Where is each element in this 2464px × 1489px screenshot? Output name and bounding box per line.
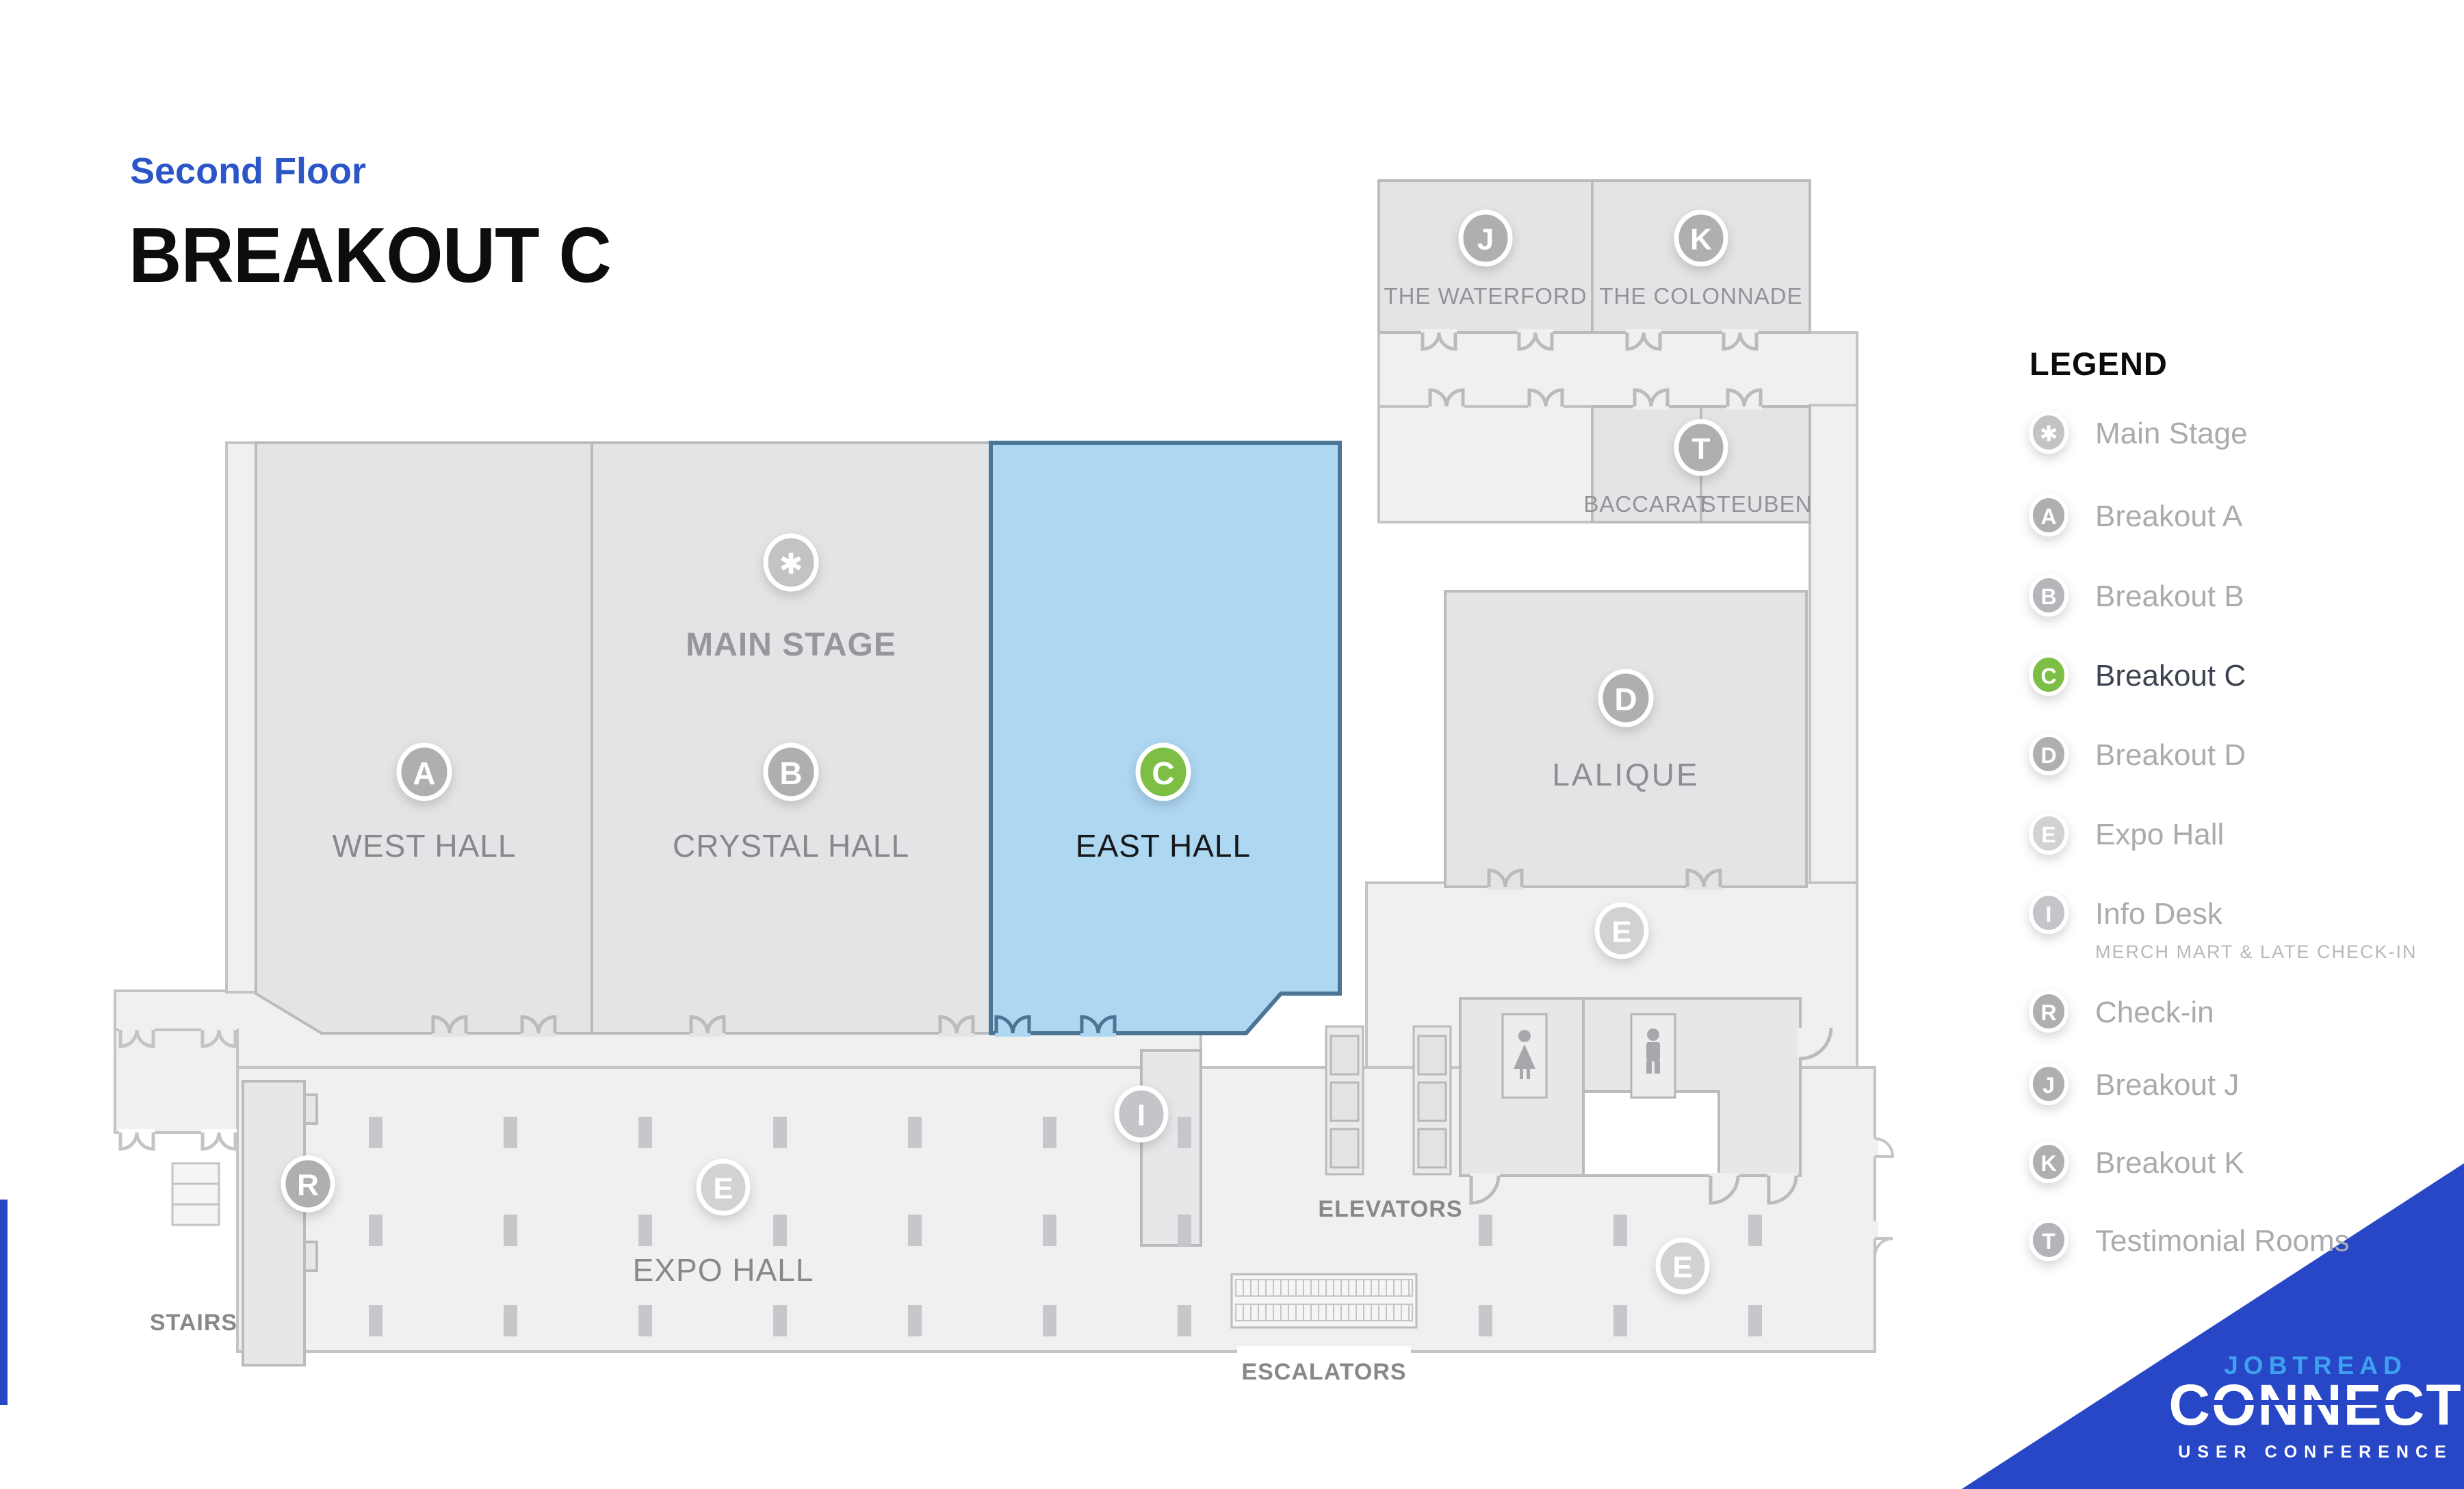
svg-text:Testimonial Rooms: Testimonial Rooms (2095, 1224, 2350, 1258)
restrooms-block (1460, 998, 1800, 1176)
stairs-label: STAIRS (150, 1310, 237, 1336)
logo-tagline: USER CONFERENCE (2178, 1442, 2452, 1462)
badge-check-in-r: R (283, 1158, 333, 1210)
svg-text:E: E (1672, 1251, 1692, 1284)
west-hall-label: WEST HALL (333, 828, 517, 864)
escalators-label: ESCALATORS (1241, 1359, 1406, 1385)
banner-left-sliver (0, 1200, 8, 1405)
legend-item-expo-hall: E (2031, 814, 2066, 853)
corridor-west-strip (226, 443, 256, 992)
colonnade-label: THE COLONNADE (1599, 283, 1802, 309)
badge-east-hall-c: C (1138, 745, 1189, 799)
badge-expo-e-1: E (699, 1161, 748, 1213)
room-lalique (1445, 591, 1806, 887)
badge-crystal-hall-b: B (766, 745, 816, 799)
page-title: BREAKOUT C (129, 212, 611, 299)
svg-text:✱: ✱ (779, 548, 803, 580)
legend-item-breakout-d: D (2031, 735, 2066, 773)
lalique-label: LALIQUE (1552, 757, 1699, 792)
svg-text:B: B (779, 755, 802, 791)
room-crystal-hall (592, 443, 991, 1033)
legend-item-breakout-b: B (2031, 576, 2066, 614)
baccarat-label: BACCARAT (1583, 491, 1710, 517)
legend-item-main-stage: ✱ (2031, 413, 2066, 452)
elevators-label: ELEVATORS (1318, 1196, 1462, 1222)
svg-text:T: T (2042, 1229, 2056, 1254)
steuben-label: STEUBEN (1701, 491, 1813, 517)
badge-colonnade-k: K (1676, 212, 1726, 264)
legend-item-check-in: R (2031, 992, 2066, 1031)
badge-west-hall-a: A (399, 745, 450, 799)
svg-text:Info Desk: Info Desk (2095, 897, 2223, 931)
legend-item-breakout-j: J (2031, 1065, 2066, 1103)
expo-hall-label: EXPO HALL (633, 1252, 814, 1288)
badge-main-stage: ✱ (766, 536, 816, 589)
svg-text:Breakout D: Breakout D (2095, 738, 2246, 772)
svg-text:Check-in: Check-in (2095, 996, 2214, 1029)
svg-text:D: D (1614, 682, 1637, 717)
info-desk-block (1141, 1050, 1201, 1245)
logo-slash (2205, 1400, 2426, 1405)
room-west-hall (256, 443, 592, 1033)
svg-text:Breakout J: Breakout J (2095, 1068, 2239, 1102)
banner-corner-triangle (1962, 1163, 2464, 1489)
legend-item-breakout-a: A (2031, 496, 2066, 534)
svg-text:I: I (1137, 1099, 1145, 1132)
legend-list: ✱ Main Stage A Breakout A B Breakout B C… (2031, 413, 2417, 1259)
svg-text:C: C (1152, 755, 1174, 791)
svg-text:R: R (297, 1169, 319, 1202)
badge-lalique-d: D (1600, 671, 1651, 725)
legend-item-info-desk: I (2031, 894, 2066, 932)
svg-text:R: R (2040, 1000, 2056, 1025)
crystal-hall-label: CRYSTAL HALL (673, 828, 909, 864)
svg-text:C: C (2040, 664, 2056, 688)
svg-text:E: E (2041, 823, 2056, 847)
svg-text:A: A (413, 755, 435, 791)
svg-text:Breakout A: Breakout A (2095, 500, 2243, 533)
page-eyebrow: Second Floor (130, 151, 366, 192)
svg-text:Breakout K: Breakout K (2095, 1146, 2244, 1180)
badge-expo-e-2: E (1658, 1240, 1707, 1292)
svg-text:J: J (2042, 1073, 2055, 1098)
svg-text:A: A (2040, 504, 2056, 529)
svg-text:D: D (2040, 743, 2056, 768)
entry-vestibule (115, 1030, 237, 1132)
svg-text:Expo Hall: Expo Hall (2095, 818, 2224, 851)
legend-item-breakout-c-label: Breakout C (2095, 659, 2246, 692)
svg-text:K: K (2040, 1151, 2056, 1176)
svg-text:T: T (1692, 432, 1711, 466)
svg-text:I: I (2046, 902, 2052, 927)
svg-text:E: E (1611, 916, 1631, 949)
corridor-east-strip (1810, 405, 1857, 885)
badge-info-desk-i: I (1117, 1088, 1166, 1140)
east-hall-label: EAST HALL (1076, 828, 1251, 864)
svg-text:Main Stage: Main Stage (2095, 417, 2248, 450)
room-unlabeled (1379, 406, 1592, 522)
room-east-hall (991, 443, 1340, 1033)
svg-text:B: B (2040, 584, 2056, 609)
legend-item-breakout-c: C (2031, 656, 2066, 694)
main-stage-label: MAIN STAGE (686, 627, 896, 663)
badge-testimonial-t: T (1676, 422, 1726, 474)
legend-heading: LEGEND (2029, 346, 2168, 382)
badge-waterford-j: J (1461, 212, 1510, 264)
svg-text:K: K (1690, 223, 1712, 257)
svg-text:E: E (713, 1172, 733, 1206)
svg-text:Breakout B: Breakout B (2095, 580, 2244, 613)
legend-item-testimonial-rooms: T (2031, 1221, 2066, 1259)
check-in-block (243, 1081, 317, 1365)
waterford-label: THE WATERFORD (1384, 283, 1587, 309)
badge-corridor-e: E (1597, 905, 1646, 957)
svg-text:J: J (1477, 223, 1494, 257)
floor-plan-canvas: WEST HALL CRYSTAL HALL MAIN STAGE EAST H… (0, 0, 2464, 1489)
svg-text:✱: ✱ (2040, 422, 2058, 446)
legend-item-breakout-k: K (2031, 1143, 2066, 1181)
stairs-icon (172, 1163, 219, 1225)
legend-info-desk-sublabel: MERCH MART & LATE CHECK-IN (2095, 942, 2417, 962)
